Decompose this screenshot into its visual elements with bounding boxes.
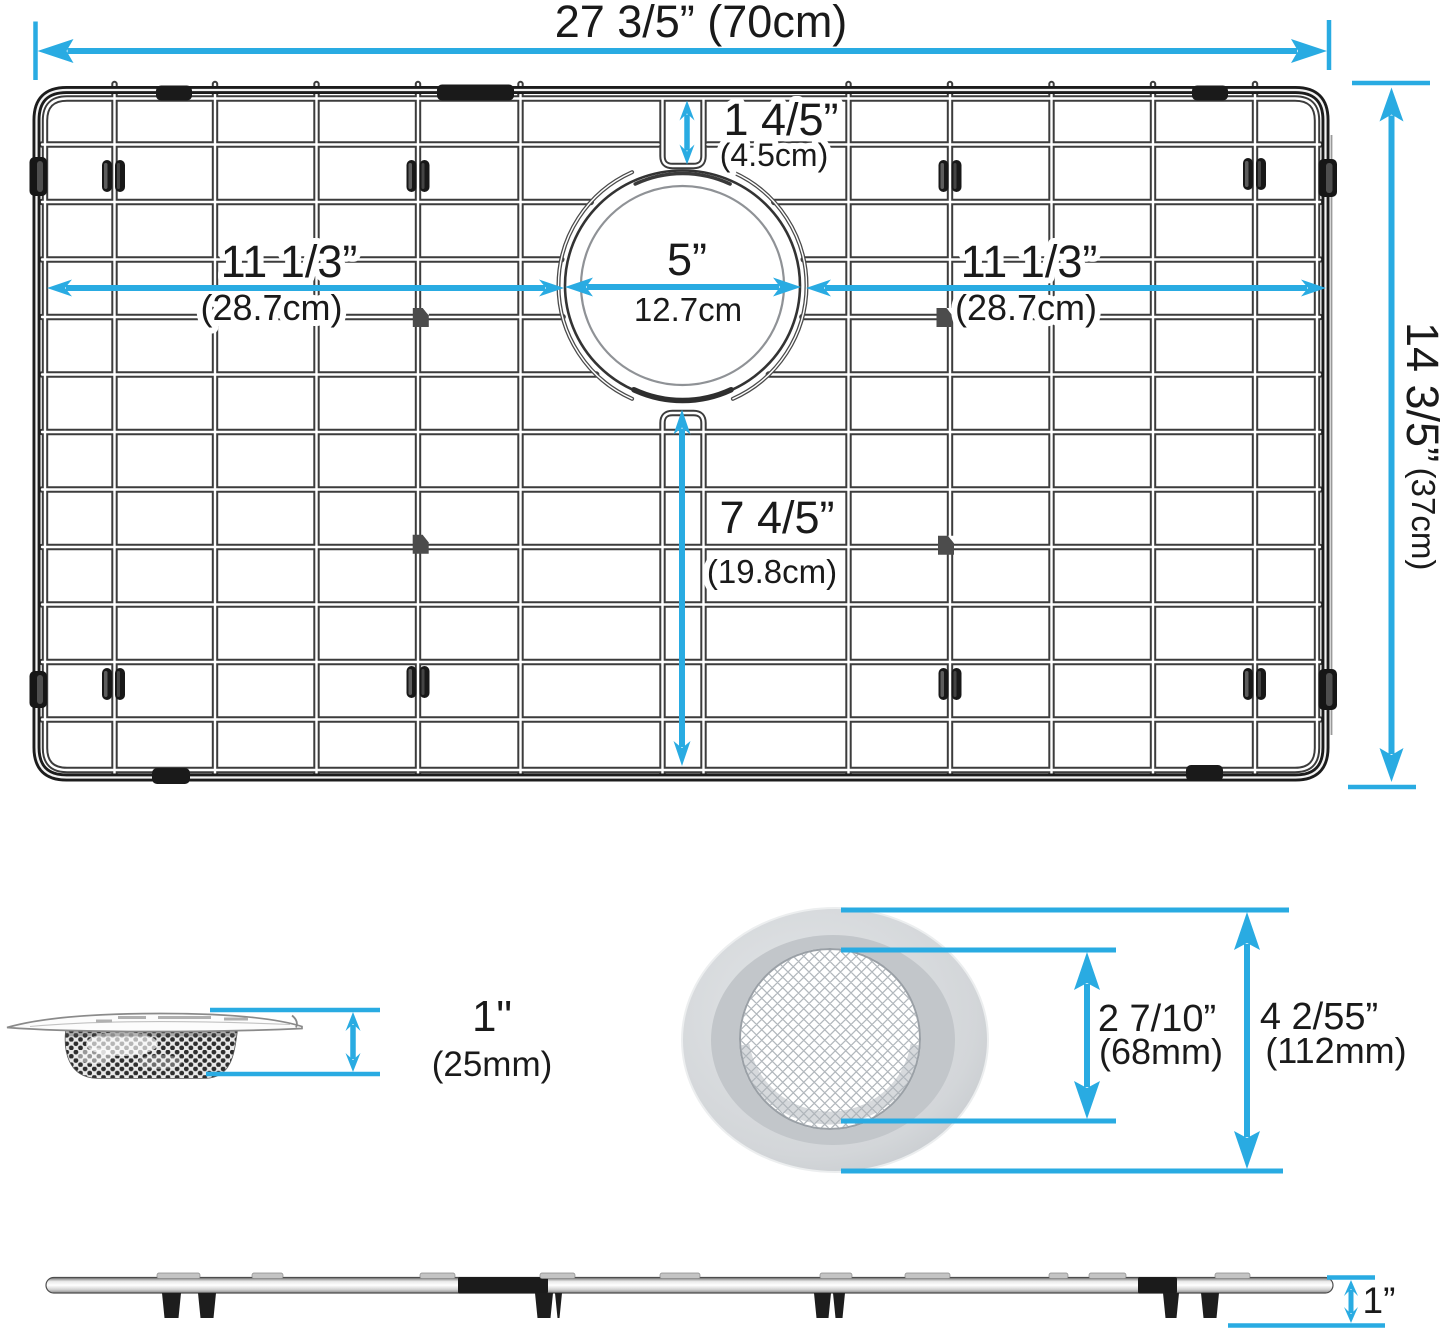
svg-text:(19.8cm): (19.8cm)	[707, 553, 837, 590]
svg-text:1”: 1”	[1363, 1280, 1396, 1321]
svg-text:27 3/5” (70cm): 27 3/5” (70cm)	[555, 0, 848, 47]
svg-text:5”: 5”	[667, 234, 707, 285]
svg-text:(28.7cm): (28.7cm)	[955, 287, 1097, 328]
svg-text:11 1/3”: 11 1/3”	[221, 236, 358, 287]
svg-text:(37cm): (37cm)	[1405, 468, 1442, 571]
svg-text:(4.5cm): (4.5cm)	[720, 137, 828, 173]
svg-text:14 3/5”: 14 3/5”	[1397, 322, 1445, 462]
svg-text:11 1/3”: 11 1/3”	[961, 236, 1098, 287]
svg-text:1": 1"	[472, 992, 512, 1041]
svg-text:(68mm): (68mm)	[1099, 1031, 1223, 1072]
svg-text:12.7cm: 12.7cm	[634, 291, 742, 328]
svg-text:(28.7cm): (28.7cm)	[200, 287, 342, 328]
svg-text:7 4/5”: 7 4/5”	[719, 492, 834, 543]
svg-text:(112mm): (112mm)	[1265, 1030, 1406, 1071]
svg-text:(25mm): (25mm)	[432, 1045, 553, 1084]
